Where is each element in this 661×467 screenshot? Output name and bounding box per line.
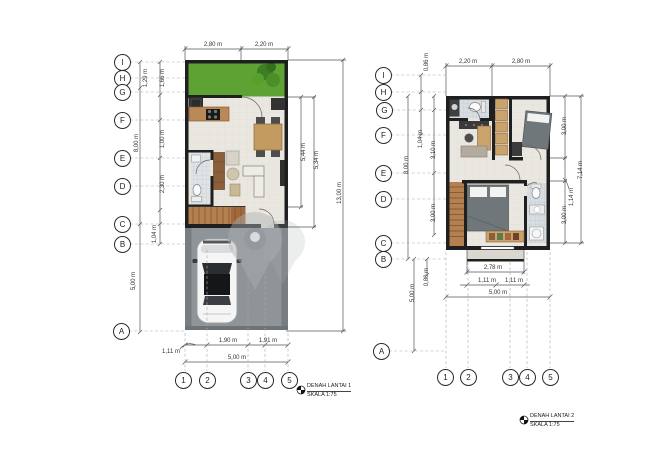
dim-label: 5,00 m	[228, 355, 246, 361]
tv-console	[280, 160, 285, 186]
dim-label: 1,00 m	[160, 130, 166, 148]
dim-label: 7,14 m	[578, 161, 584, 179]
grid-marker-row: I	[114, 54, 131, 71]
stove	[206, 109, 220, 120]
grid-marker-col: 1	[437, 369, 454, 386]
grid-marker-row: H	[375, 84, 392, 101]
grid-marker-row: I	[375, 67, 392, 84]
grid-marker-row: F	[375, 127, 392, 144]
grid-marker-row: A	[113, 323, 130, 340]
grid-marker-col: 4	[519, 369, 536, 386]
toilet	[193, 185, 201, 196]
grid-marker-row: B	[375, 251, 392, 268]
sofa	[243, 166, 264, 176]
grid-marker-row: G	[114, 84, 131, 101]
shelf-column	[496, 99, 508, 155]
grid-marker-row: C	[114, 216, 131, 233]
dim-label: 5,00 m	[131, 272, 137, 290]
dim-label: 2,80 m	[512, 59, 530, 65]
dim-label: 1,90 m	[219, 338, 237, 344]
grid-marker-row: D	[114, 178, 131, 195]
dim-label: 13,00 m	[337, 182, 343, 204]
grid-marker-col: 3	[240, 372, 257, 389]
dim-label: 1,11 m	[505, 278, 523, 284]
dim-label: 3,00 m	[562, 206, 568, 224]
plan-scale: SKALA 1:75	[307, 392, 351, 399]
grid-marker-row: G	[376, 102, 393, 119]
grid-marker-row: B	[114, 236, 131, 253]
grid-marker-row: F	[114, 112, 131, 129]
grid-marker-col: 3	[502, 369, 519, 386]
grid-marker-row: C	[375, 235, 392, 252]
dim-label: 0,80 m	[424, 268, 430, 286]
carport-edge	[185, 326, 288, 330]
dim-label: 1,91 m	[259, 338, 277, 344]
plan-title: DENAH LANTAI 2	[530, 413, 574, 422]
plan-title: DENAH LANTAI 1	[307, 383, 351, 392]
floor-plan-1	[129, 46, 346, 394]
grid-marker-col: 1	[175, 372, 192, 389]
chair	[227, 168, 239, 180]
dim-label: 5,00 m	[410, 284, 416, 302]
dim-label: 2,78 m	[484, 265, 502, 271]
dim-label: 3,10 m	[431, 141, 437, 159]
dim-label: 1,29 m	[143, 69, 149, 87]
dim-label: 0,86 m	[424, 53, 430, 71]
dim-label: 5,44 m	[301, 143, 307, 161]
dim-label: 2,80 m	[204, 42, 222, 48]
dim-label: 2,20 m	[459, 59, 477, 65]
dim-label: 2,20 m	[255, 42, 273, 48]
bench	[461, 146, 487, 157]
sink	[192, 155, 201, 162]
dim-label: 1,04 m	[152, 225, 158, 243]
side-table	[226, 151, 239, 165]
car-mirror	[193, 259, 198, 263]
dim-label: 8,00 m	[134, 134, 140, 152]
window	[481, 247, 514, 250]
grid-marker-col: 4	[257, 372, 274, 389]
plan-scale: SKALA 1:75	[530, 422, 574, 429]
dim-label: 5,34 m	[314, 151, 320, 169]
grid-marker-row: A	[373, 343, 390, 360]
grid-marker-col: 2	[199, 372, 216, 389]
dim-label: 3,00 m	[562, 117, 568, 135]
dim-label: 1,04 m	[418, 130, 424, 148]
dim-label: 1,11 m	[162, 349, 180, 355]
nightstand	[512, 142, 522, 156]
dim-label: 1,11 m	[478, 278, 496, 284]
dim-label: 8,00 m	[404, 156, 410, 174]
toilet	[532, 188, 540, 199]
stairs-upper	[450, 182, 465, 246]
dim-label: 2,30 m	[160, 175, 166, 193]
grid-marker-row: D	[375, 191, 392, 208]
floor-plan-sheet: I H G F E D C B A 1 2 3 4 5 2,80 m 2,20 …	[0, 0, 661, 467]
dim-label: 5,00 m	[489, 290, 507, 296]
grid-marker-row: E	[375, 165, 392, 182]
dim-label: 3,00 m	[431, 204, 437, 222]
north-arrow-icon	[297, 386, 305, 394]
dim-label: 1,66 m	[160, 69, 166, 87]
wardrobe	[214, 153, 225, 190]
north-arrow-icon	[520, 416, 528, 424]
dim-label: 1,14 m	[569, 188, 575, 206]
grid-marker-row: E	[114, 150, 131, 167]
grid-marker-col: 5	[542, 369, 559, 386]
title-block-1: DENAH LANTAI 1 SKALA 1:75	[307, 383, 351, 399]
desk-chair	[465, 134, 474, 143]
coffee-table	[230, 184, 240, 196]
dining-table	[254, 124, 282, 150]
storage-cabinet	[271, 98, 285, 110]
title-block-2: DENAH LANTAI 2 SKALA 1:75	[530, 413, 574, 429]
carport-curb-left	[185, 228, 192, 330]
grid-marker-col: 2	[460, 369, 477, 386]
grid-marker-col: 5	[281, 372, 298, 389]
